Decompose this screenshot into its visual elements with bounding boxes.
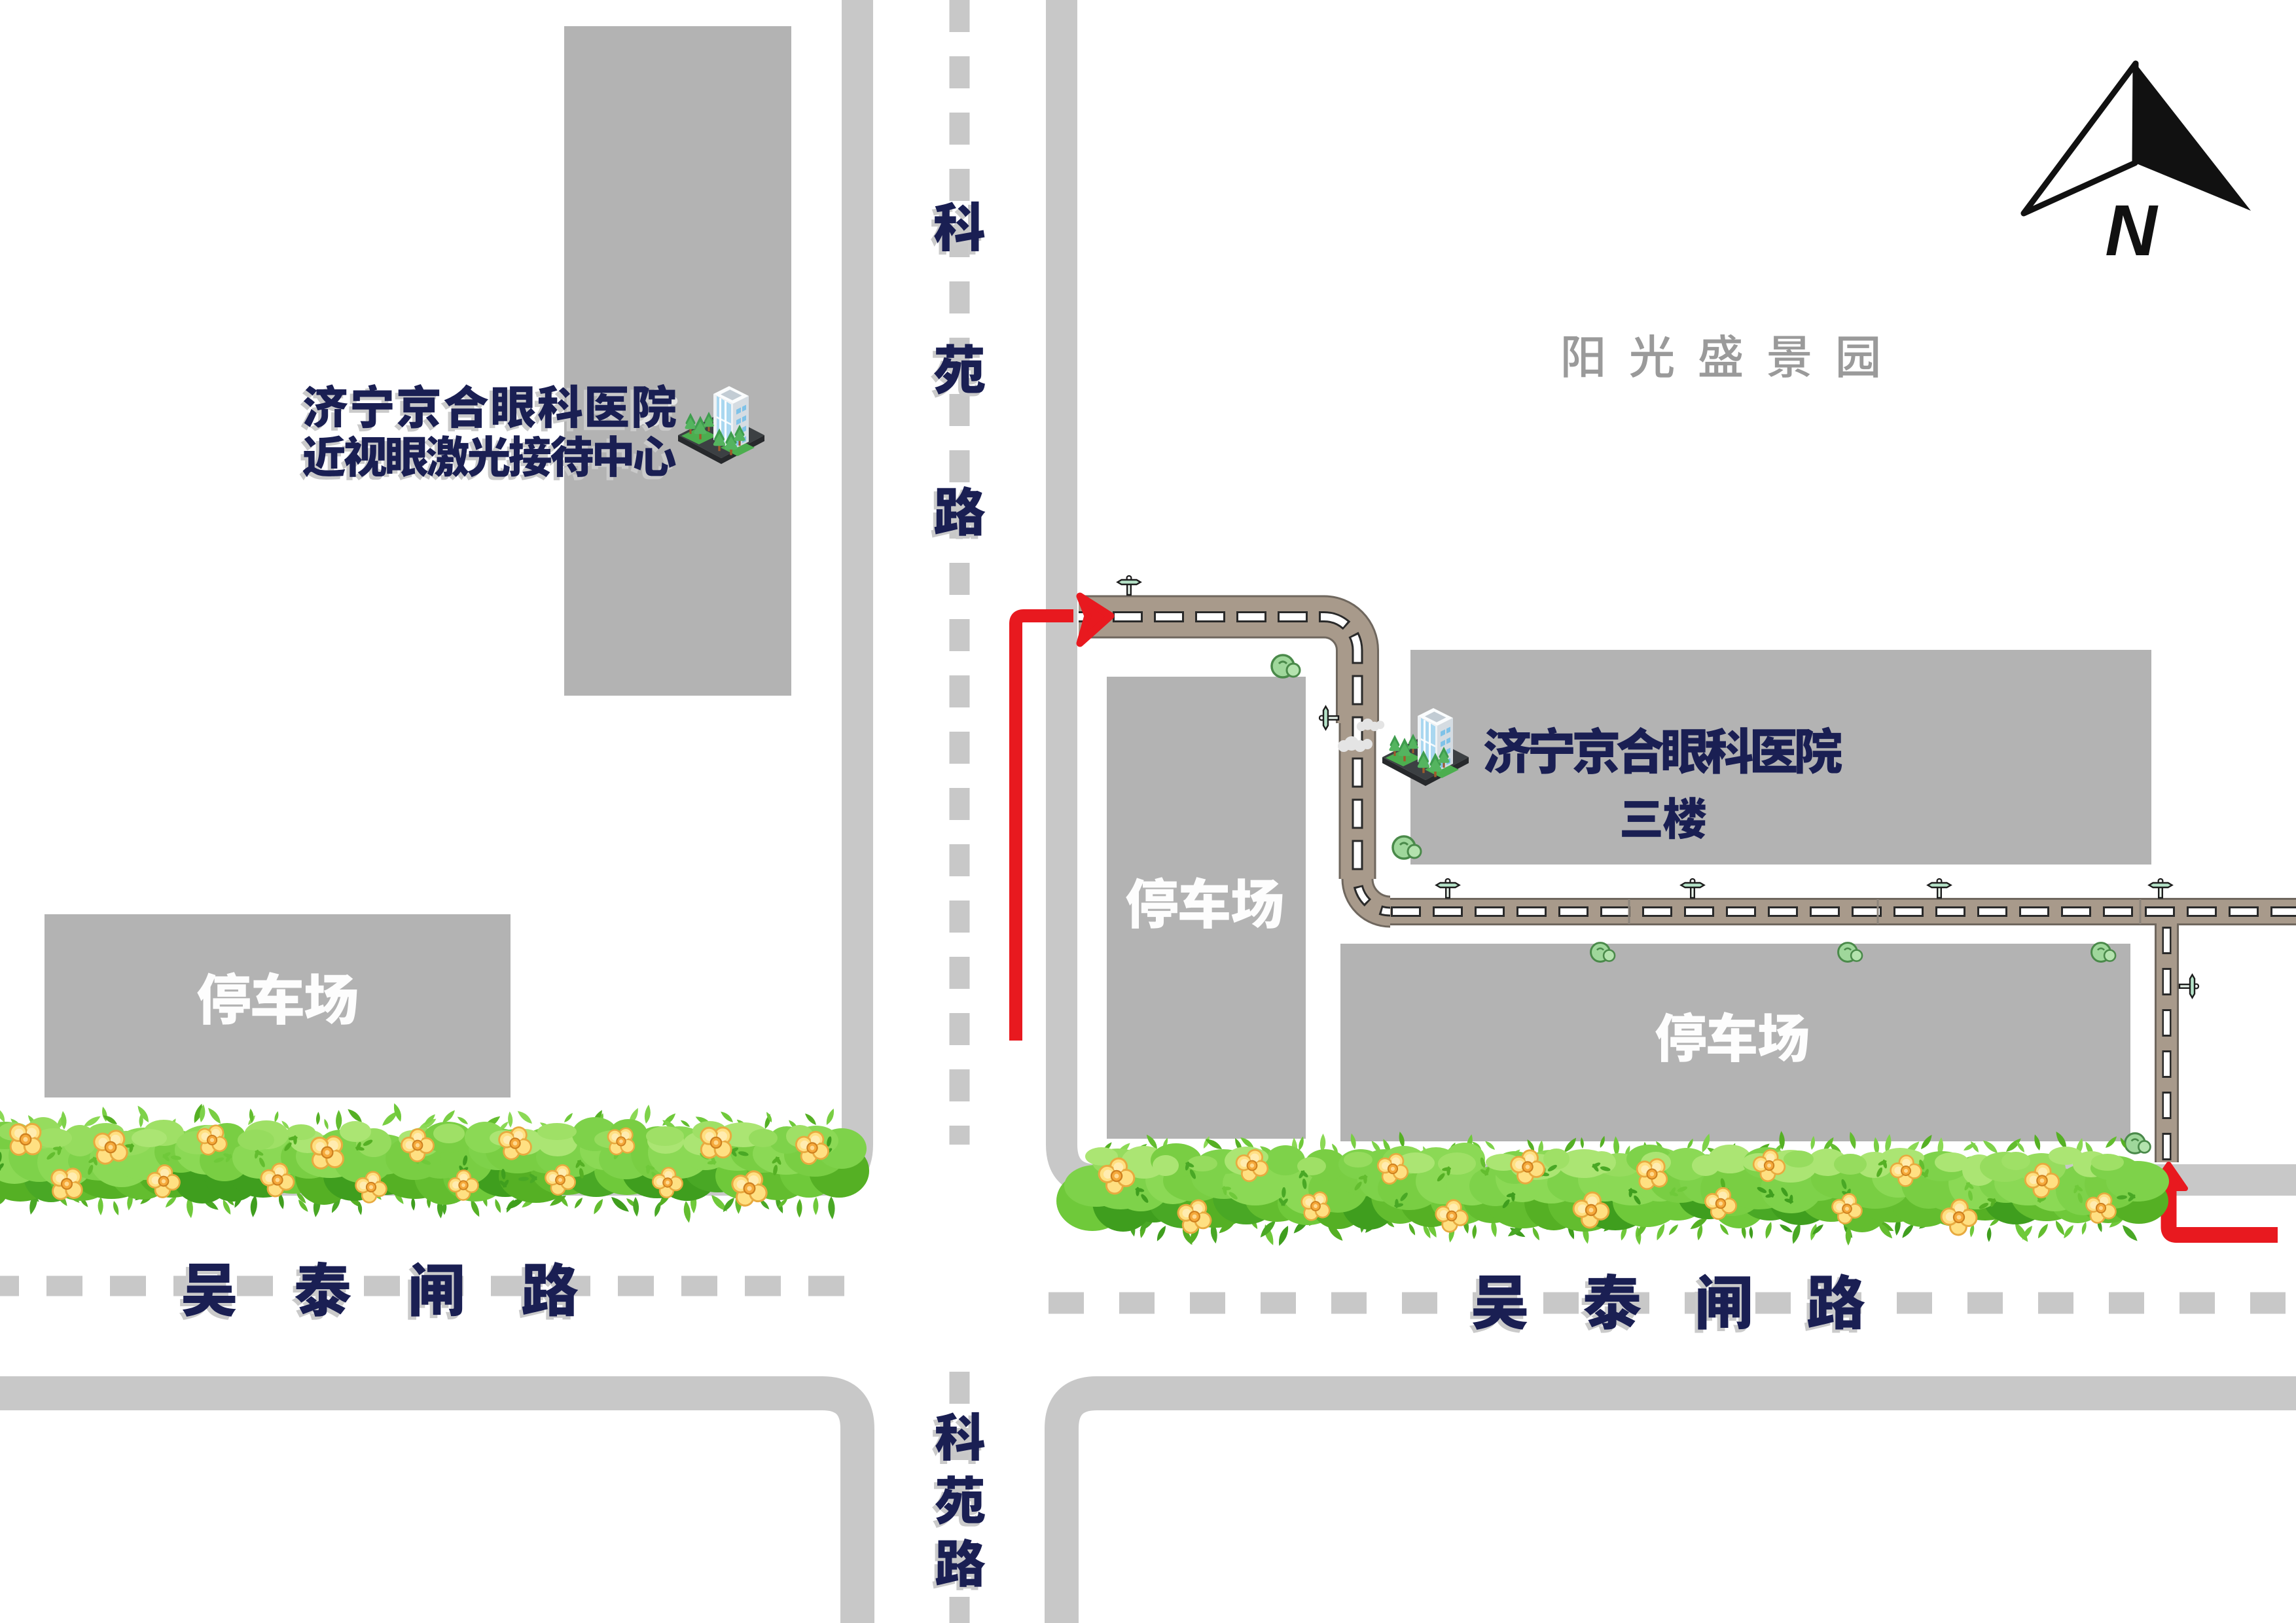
svg-text:N: N [2105, 190, 2159, 271]
